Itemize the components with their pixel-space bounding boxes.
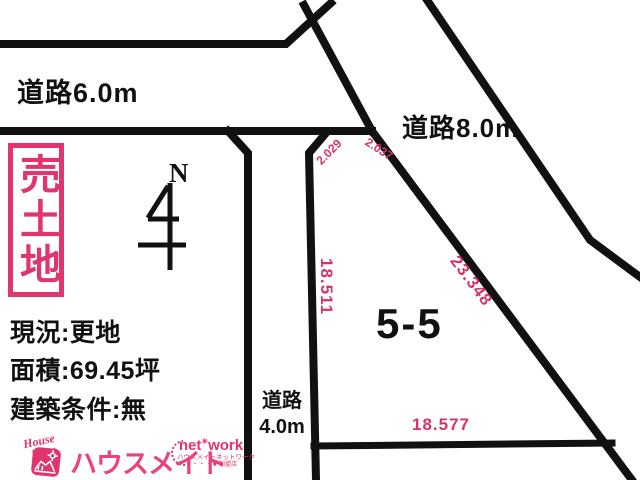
housemate-house-icon [31, 447, 62, 478]
road-6m-label: 道路6.0m [17, 71, 139, 110]
road-8m-west-edge-upper [304, 5, 372, 131]
north-label: N [169, 158, 189, 189]
measurement-west-side: 18.511 [316, 258, 336, 315]
road-4m-label-line2: 4.0m [246, 414, 318, 440]
network-logo: net✳work ハウスメイトネットワーク ・・・・■ 加盟店 [177, 438, 245, 470]
road-4m-label-line1: 道路 [246, 388, 318, 414]
detail-area: 面積:69.45坪 [10, 351, 160, 387]
network-word2: work [208, 437, 243, 454]
land-sale-flyer: 道路6.0m 道路8.0m 道路 4.0m 売土地 N 5-5 18.511 2… [0, 0, 640, 480]
network-member-label: 加盟店 [219, 462, 237, 468]
road-8m-label: 道路8.0m [402, 108, 519, 145]
north-arrow-icon [138, 183, 186, 270]
for-sale-badge-text: 売土地 [16, 153, 57, 288]
for-sale-badge: 売土地 [8, 143, 64, 297]
housemate-script-logo: House Mate [5, 437, 65, 477]
detail-current-state: 現況:更地 [10, 313, 121, 349]
road-4m-label: 道路 4.0m [246, 388, 318, 440]
road-4m-west-edge [228, 131, 248, 480]
detail-building-conditions: 建築条件:無 [10, 390, 146, 426]
road-6m-top-edge [0, 3, 331, 44]
plot-number: 5-5 [376, 300, 443, 348]
plot-south-boundary [314, 443, 612, 446]
measurement-south-side: 18.577 [412, 415, 470, 435]
